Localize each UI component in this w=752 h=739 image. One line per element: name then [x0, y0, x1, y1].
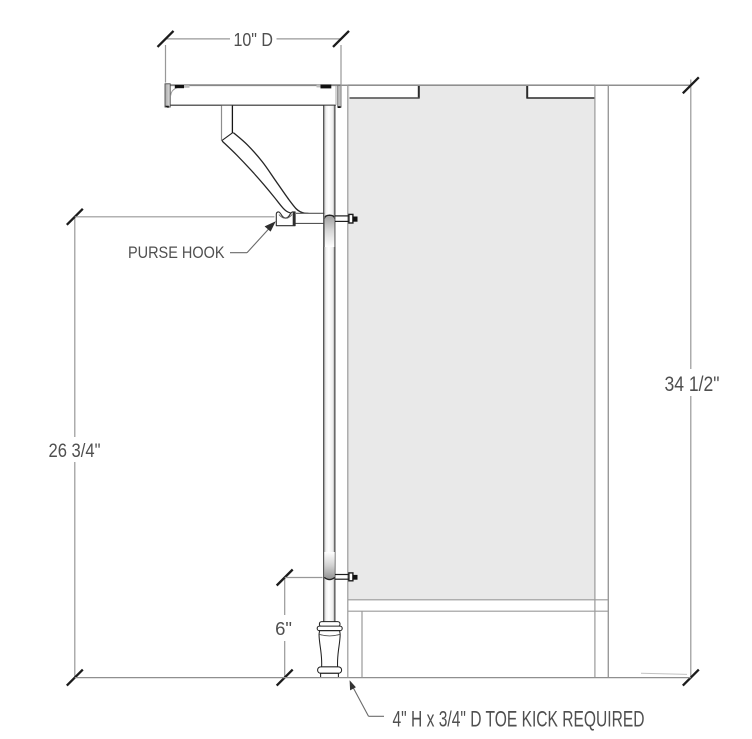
- svg-text:6": 6": [275, 618, 292, 639]
- svg-text:10" D: 10" D: [233, 30, 273, 50]
- svg-text:34 1/2": 34 1/2": [665, 373, 720, 396]
- svg-text:4" H x 3/4" D TOE KICK REQUIRE: 4" H x 3/4" D TOE KICK REQUIRED: [393, 706, 645, 731]
- svg-text:26 3/4": 26 3/4": [49, 440, 101, 462]
- svg-text:PURSE HOOK: PURSE HOOK: [128, 243, 225, 262]
